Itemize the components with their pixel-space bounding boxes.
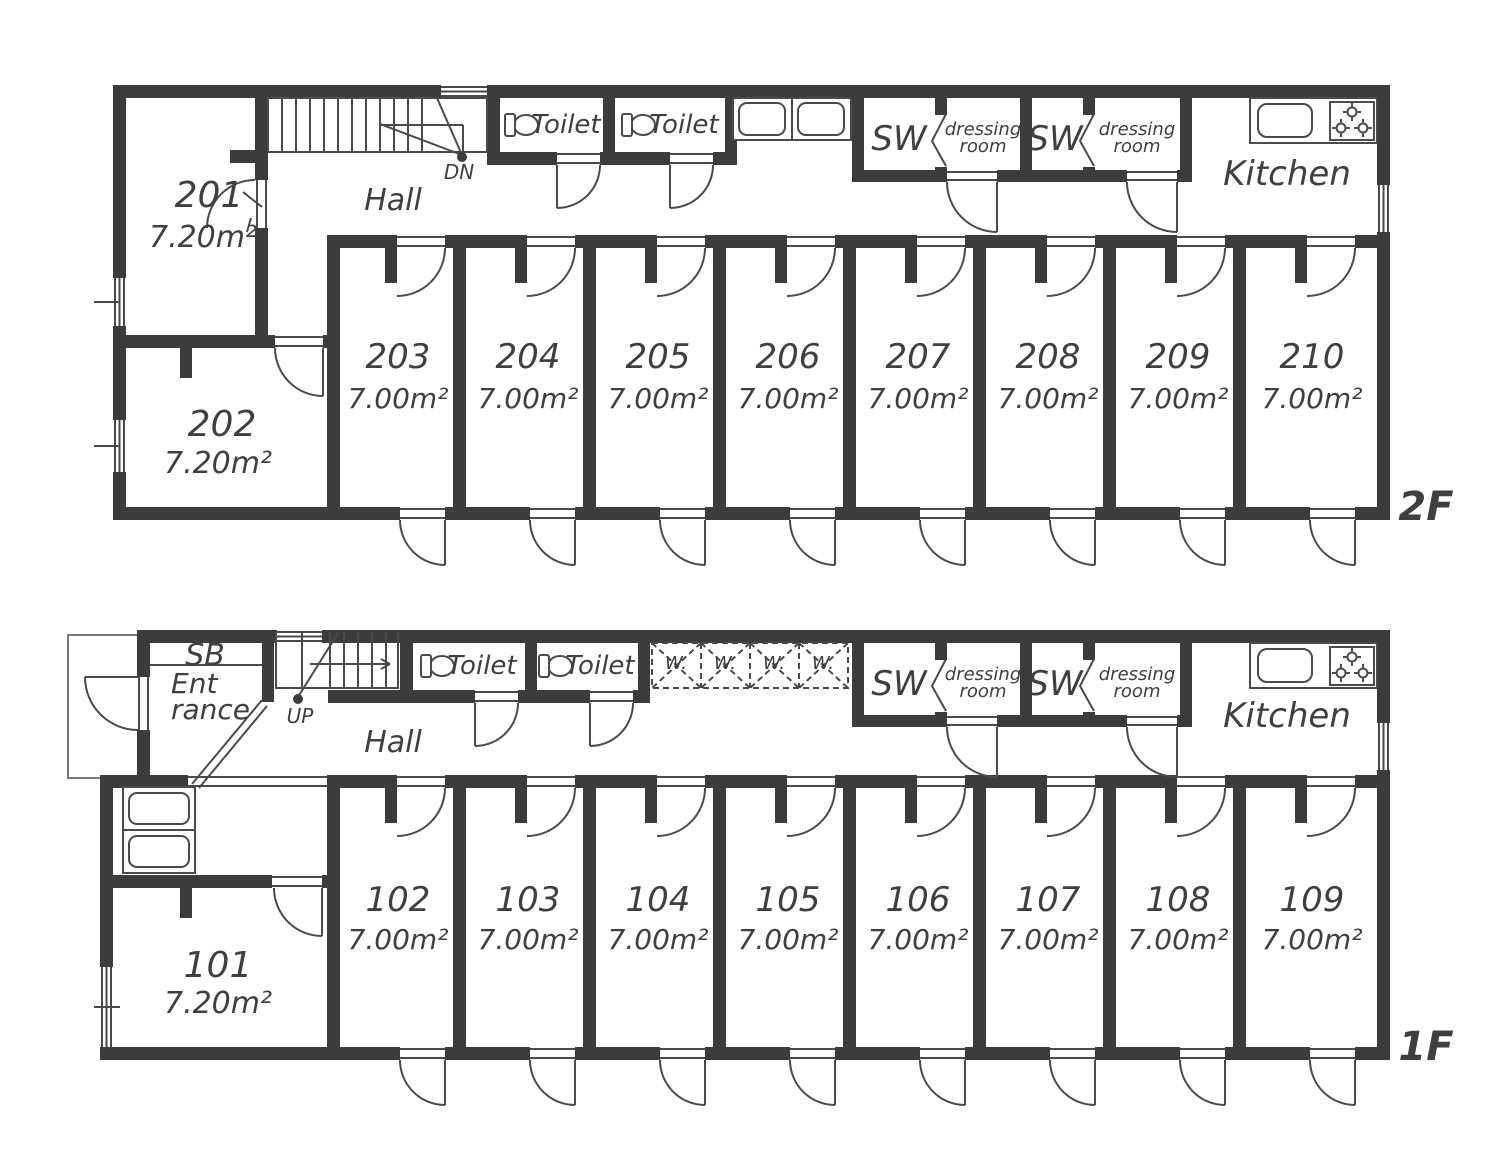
hall-label: Hall [364,728,422,758]
washer-space-label: W. [763,655,785,673]
walls-2f [113,85,1390,520]
room-number-label: 104 [626,883,691,917]
room-number-label: 107 [1016,883,1081,917]
kitchen-counter-icon [1250,98,1377,143]
floor-name-label: 2F [1398,487,1453,527]
door-jambs-1f [139,677,1355,1058]
room-number-label: 109 [1280,883,1345,917]
room-number-label: 105 [756,883,821,917]
kitchen-label: Kitchen [1223,157,1351,191]
toilet-label: Toilet [447,653,516,679]
room-area-label: 7.00m² [738,385,839,413]
entrance-label: Ent rance [171,671,250,723]
room-area-label: 7.00m² [1128,926,1229,954]
shower-room-label: SW [1027,122,1082,156]
washer-space-label: W. [665,655,687,673]
room-area-label: 7.00m² [478,385,579,413]
room-area-label: 7.00m² [348,385,449,413]
entrance-porch [68,635,146,778]
room-area-label: 7.20m² [164,989,272,1019]
room-area-label: 7.00m² [738,926,839,954]
room-area-label: 7.00m² [1262,926,1363,954]
room-area-label: 7.00m² [348,926,449,954]
dressing-room-label: dressing room [945,121,1022,155]
shower-room-label: SW [871,122,926,156]
shower-room-label: SW [1027,667,1082,701]
room-area-label: 7.00m² [1128,385,1229,413]
window-glazing-1f [94,632,1388,1047]
room-area-label: 7.00m² [998,385,1099,413]
floor-2f-drawing [94,85,1390,565]
room-number-label: 106 [886,883,951,917]
room-number-label: 102 [366,883,431,917]
floor-1f-drawing [68,630,1390,1105]
room-number-label: 206 [756,340,821,374]
toilet-label: Toilet [565,653,634,679]
laundry-basin-icon [123,787,195,873]
staircase-2f [268,98,487,162]
wall-openings-1f [100,630,1390,1060]
walls-1f [100,630,1390,1060]
room-area-label: 7.20m² [149,223,257,253]
room-number-label: 201 [175,178,244,214]
washer-space-label: W. [812,655,834,673]
room-area-label: 7.00m² [478,926,579,954]
room-area-label: 7.00m² [608,926,709,954]
washbasin-icon [733,98,851,140]
room-number-label: 101 [184,948,253,984]
room-number-label: 203 [366,340,431,374]
room-number-label: 205 [626,340,691,374]
kitchen-sink-icon [1258,104,1312,137]
wall-openings-2f [113,85,1390,520]
room-number-label: 209 [1146,340,1211,374]
stair-direction-label: DN [444,162,474,182]
room-number-label: 208 [1016,340,1081,374]
kitchen-label: Kitchen [1223,699,1351,733]
dressing-room-label: dressing room [1099,121,1176,155]
dressing-room-label: dressing room [945,666,1022,700]
room-area-label: 7.00m² [608,385,709,413]
room-number-label: 204 [496,340,561,374]
room-number-label: 210 [1280,340,1345,374]
room-area-label: 7.00m² [1262,385,1363,413]
room-area-label: 7.00m² [998,926,1099,954]
toilet-label: Toilet [649,112,718,138]
dressing-room-label: dressing room [1099,666,1176,700]
washer-space-label: W. [714,655,736,673]
floorplan-page: Hall DN Toilet Toilet SW SW dressing roo… [0,0,1500,1169]
floor-name-label: 1F [1398,1027,1453,1067]
stair-direction-label: UP [287,706,314,726]
room-number-label: 207 [886,340,951,374]
kitchen-sink-icon [1258,649,1312,682]
kitchen-counter-icon [1250,643,1377,688]
hall-label: Hall [364,186,422,216]
room-area-label: 7.00m² [868,926,969,954]
room-area-label: 7.20m² [164,449,272,479]
shower-room-label: SW [871,667,926,701]
room-number-label: 108 [1146,883,1211,917]
toilet-label: Toilet [531,112,600,138]
room-number-label: 103 [496,883,561,917]
room-number-label: 202 [188,407,257,443]
stair-direction-dot [293,694,303,704]
room-area-label: 7.00m² [868,385,969,413]
